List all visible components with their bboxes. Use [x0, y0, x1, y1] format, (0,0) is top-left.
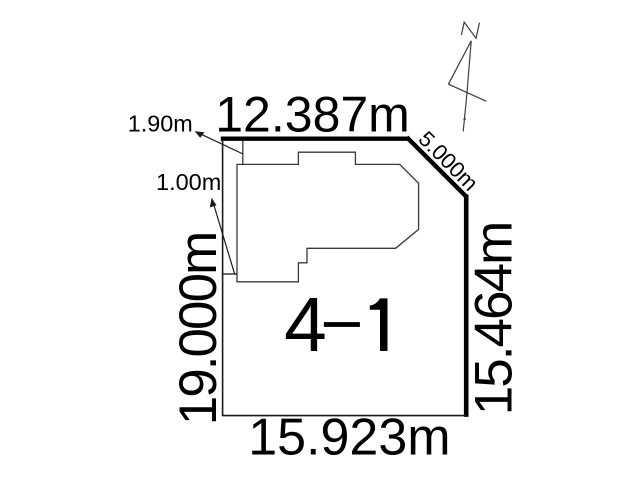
svg-text:1.90m: 1.90m [128, 111, 193, 137]
svg-text:15.923m: 15.923m [248, 409, 450, 467]
svg-text:1.00m: 1.00m [156, 169, 221, 195]
svg-text:19.000m: 19.000m [169, 233, 228, 426]
svg-text:15.464m: 15.464m [464, 223, 523, 416]
svg-text:4: 4 [284, 283, 327, 368]
svg-text:12.387m: 12.387m [215, 87, 410, 143]
